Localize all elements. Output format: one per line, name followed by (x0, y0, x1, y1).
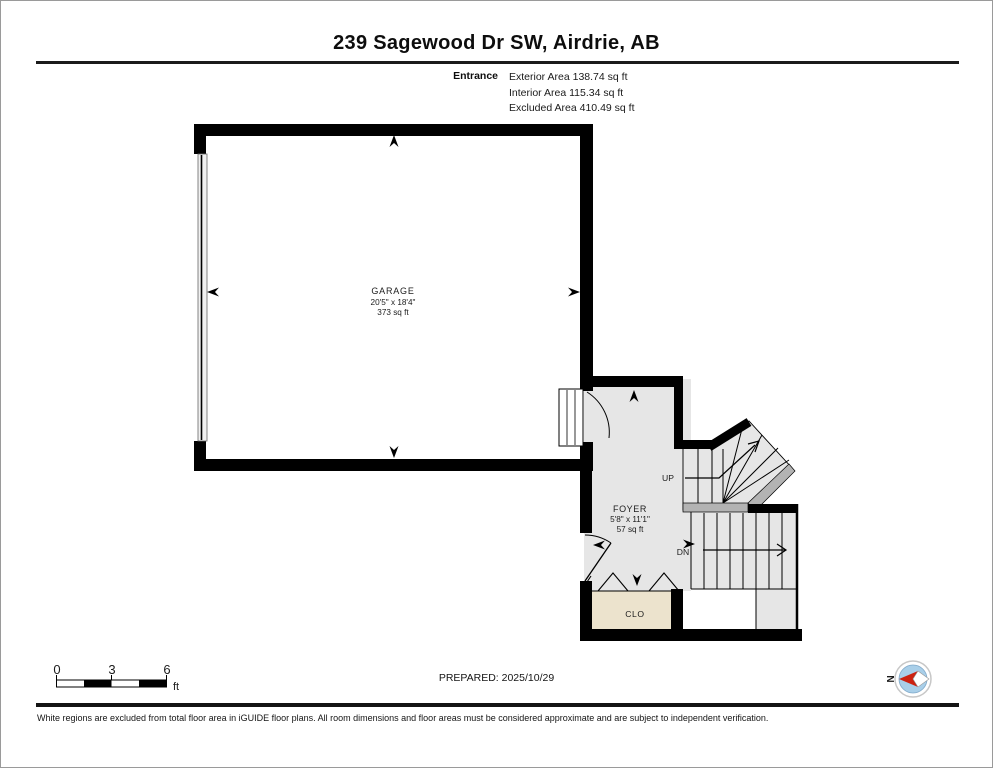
garage-bottom-wall (194, 459, 593, 471)
garage-area: 373 sq ft (377, 308, 409, 317)
foyer-left-wall (580, 471, 592, 533)
foyer-right-wall (674, 376, 683, 449)
closet-label: CLO (625, 609, 644, 619)
foyer-area: 57 sq ft (617, 525, 645, 534)
garage-door-band (198, 154, 207, 441)
garage-door (198, 154, 207, 441)
foyer-label: FOYER (613, 504, 647, 514)
closet-right-wall (671, 589, 683, 633)
floor-plan-page: 239 Sagewood Dr SW, Airdrie, AB Entrance… (0, 0, 993, 768)
floor-plan-drawing: GARAGE 20'5" x 18'4" 373 sq ft FOYER 5'8… (1, 1, 993, 768)
down-stairs-top-wall (748, 504, 798, 513)
landing-floor (756, 589, 798, 630)
railing-horizontal (683, 503, 748, 512)
footer-divider (36, 703, 959, 707)
garage-arrow-right-icon (568, 288, 580, 297)
foyer-top-wall (584, 376, 683, 387)
foyer-dimensions: 5'8" x 11'1" (610, 515, 650, 524)
interior-door-leaf (559, 389, 583, 446)
stair-top-wall-stub (674, 440, 713, 449)
garage-label: GARAGE (371, 286, 414, 296)
disclaimer-text: White regions are excluded from total fl… (37, 713, 972, 723)
garage-top-wall (194, 124, 593, 136)
garage-arrow-left-icon (207, 288, 219, 297)
up-stairs-label: UP (662, 473, 674, 483)
garage-arrow-down-icon (390, 446, 399, 458)
garage-dimensions: 20'5" x 18'4" (371, 298, 416, 307)
closet-left-wall (580, 589, 592, 633)
prepared-date: PREPARED: 2025/10/29 (1, 672, 992, 684)
down-stairs-label: DN (677, 547, 689, 557)
garage-arrow-up-icon (390, 135, 399, 147)
bottom-wall (580, 629, 802, 641)
garage-right-wall (580, 124, 593, 391)
garage-left-wall-stub-top (194, 124, 206, 154)
